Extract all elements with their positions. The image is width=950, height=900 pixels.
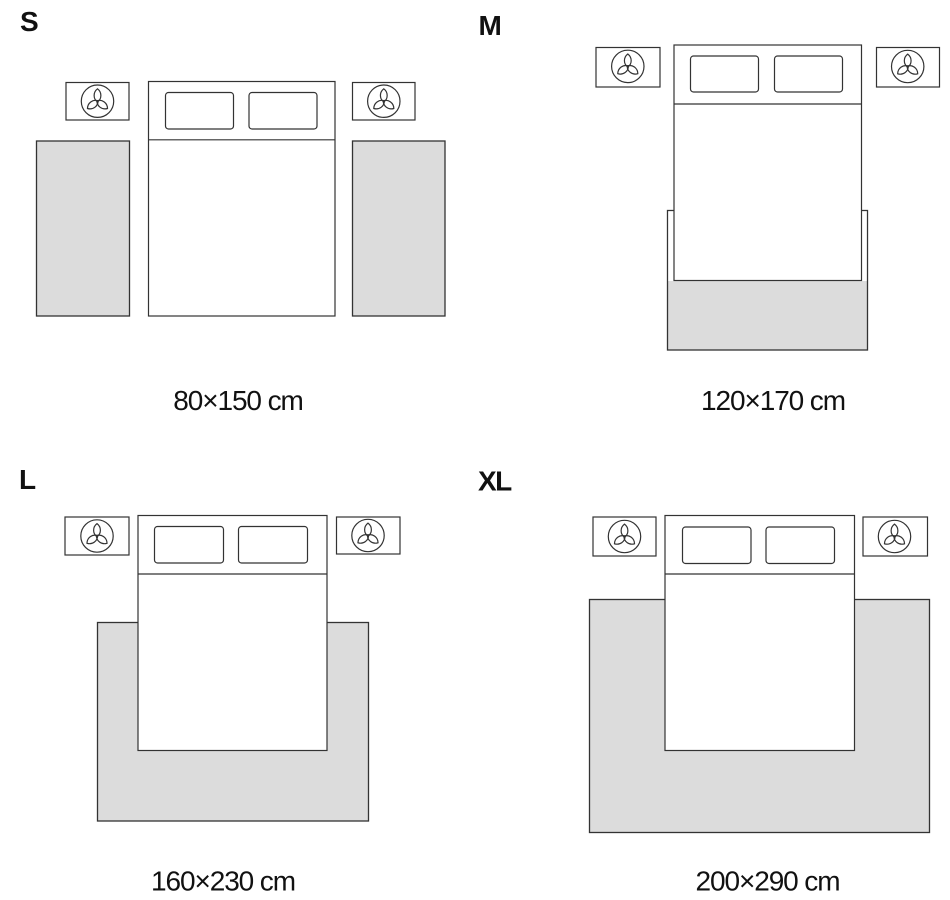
- svg-text:120×170 cm: 120×170 cm: [701, 385, 845, 416]
- svg-text:S: S: [20, 6, 39, 37]
- svg-text:160×230 cm: 160×230 cm: [151, 866, 295, 897]
- svg-text:200×290 cm: 200×290 cm: [696, 866, 840, 897]
- svg-text:M: M: [479, 10, 502, 41]
- svg-text:XL: XL: [478, 466, 512, 497]
- svg-text:L: L: [19, 464, 36, 495]
- svg-text:80×150 cm: 80×150 cm: [173, 385, 302, 416]
